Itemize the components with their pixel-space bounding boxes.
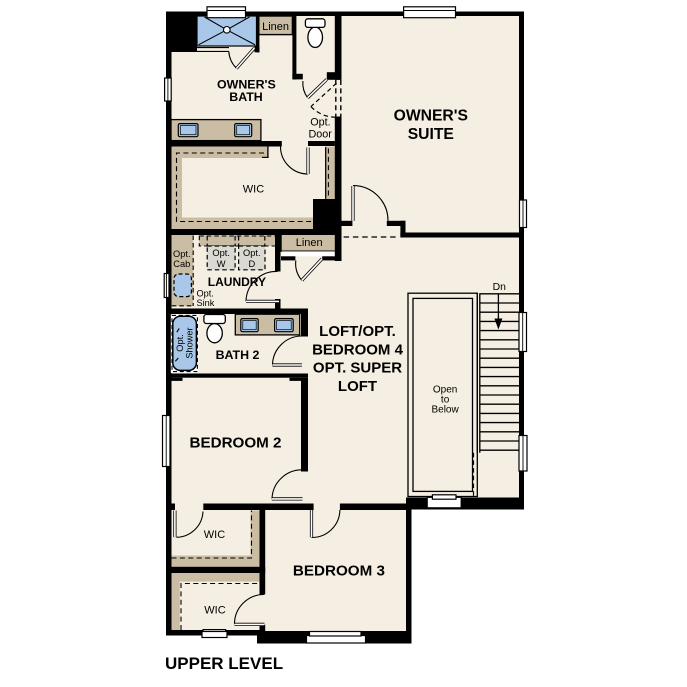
svg-text:Sink: Sink	[197, 298, 215, 308]
svg-text:BATH 2: BATH 2	[216, 348, 260, 362]
svg-text:BATH: BATH	[229, 90, 263, 104]
svg-text:Shower: Shower	[185, 327, 195, 358]
svg-text:Dn: Dn	[493, 282, 507, 293]
svg-text:Linen: Linen	[262, 21, 289, 33]
svg-text:OWNER'S: OWNER'S	[394, 108, 468, 125]
svg-text:UPPER LEVEL: UPPER LEVEL	[165, 654, 283, 673]
svg-text:Cab: Cab	[173, 259, 190, 269]
svg-text:D: D	[248, 259, 255, 269]
svg-text:Opt.: Opt.	[197, 288, 214, 298]
svg-text:Below: Below	[431, 404, 459, 415]
svg-text:OPT. SUPER: OPT. SUPER	[313, 360, 402, 377]
svg-text:BEDROOM 3: BEDROOM 3	[293, 563, 385, 580]
svg-text:Opt.: Opt.	[212, 248, 230, 258]
svg-text:LOFT: LOFT	[338, 378, 377, 395]
svg-text:W: W	[217, 259, 226, 269]
svg-text:LAUNDRY: LAUNDRY	[208, 275, 266, 289]
svg-text:LOFT/OPT.: LOFT/OPT.	[319, 323, 396, 340]
svg-text:BEDROOM 4: BEDROOM 4	[312, 341, 404, 358]
svg-text:Opt.: Opt.	[173, 249, 191, 259]
svg-text:Linen: Linen	[296, 237, 323, 249]
svg-text:BEDROOM 2: BEDROOM 2	[190, 435, 282, 452]
svg-text:WIC: WIC	[243, 184, 264, 196]
svg-text:Opt.: Opt.	[175, 334, 185, 351]
svg-text:Door: Door	[308, 129, 332, 141]
svg-text:SUITE: SUITE	[408, 126, 454, 143]
svg-text:WIC: WIC	[204, 529, 225, 541]
svg-text:Opt.: Opt.	[310, 117, 330, 129]
svg-text:Opt.: Opt.	[243, 248, 261, 258]
svg-text:WIC: WIC	[204, 605, 225, 617]
